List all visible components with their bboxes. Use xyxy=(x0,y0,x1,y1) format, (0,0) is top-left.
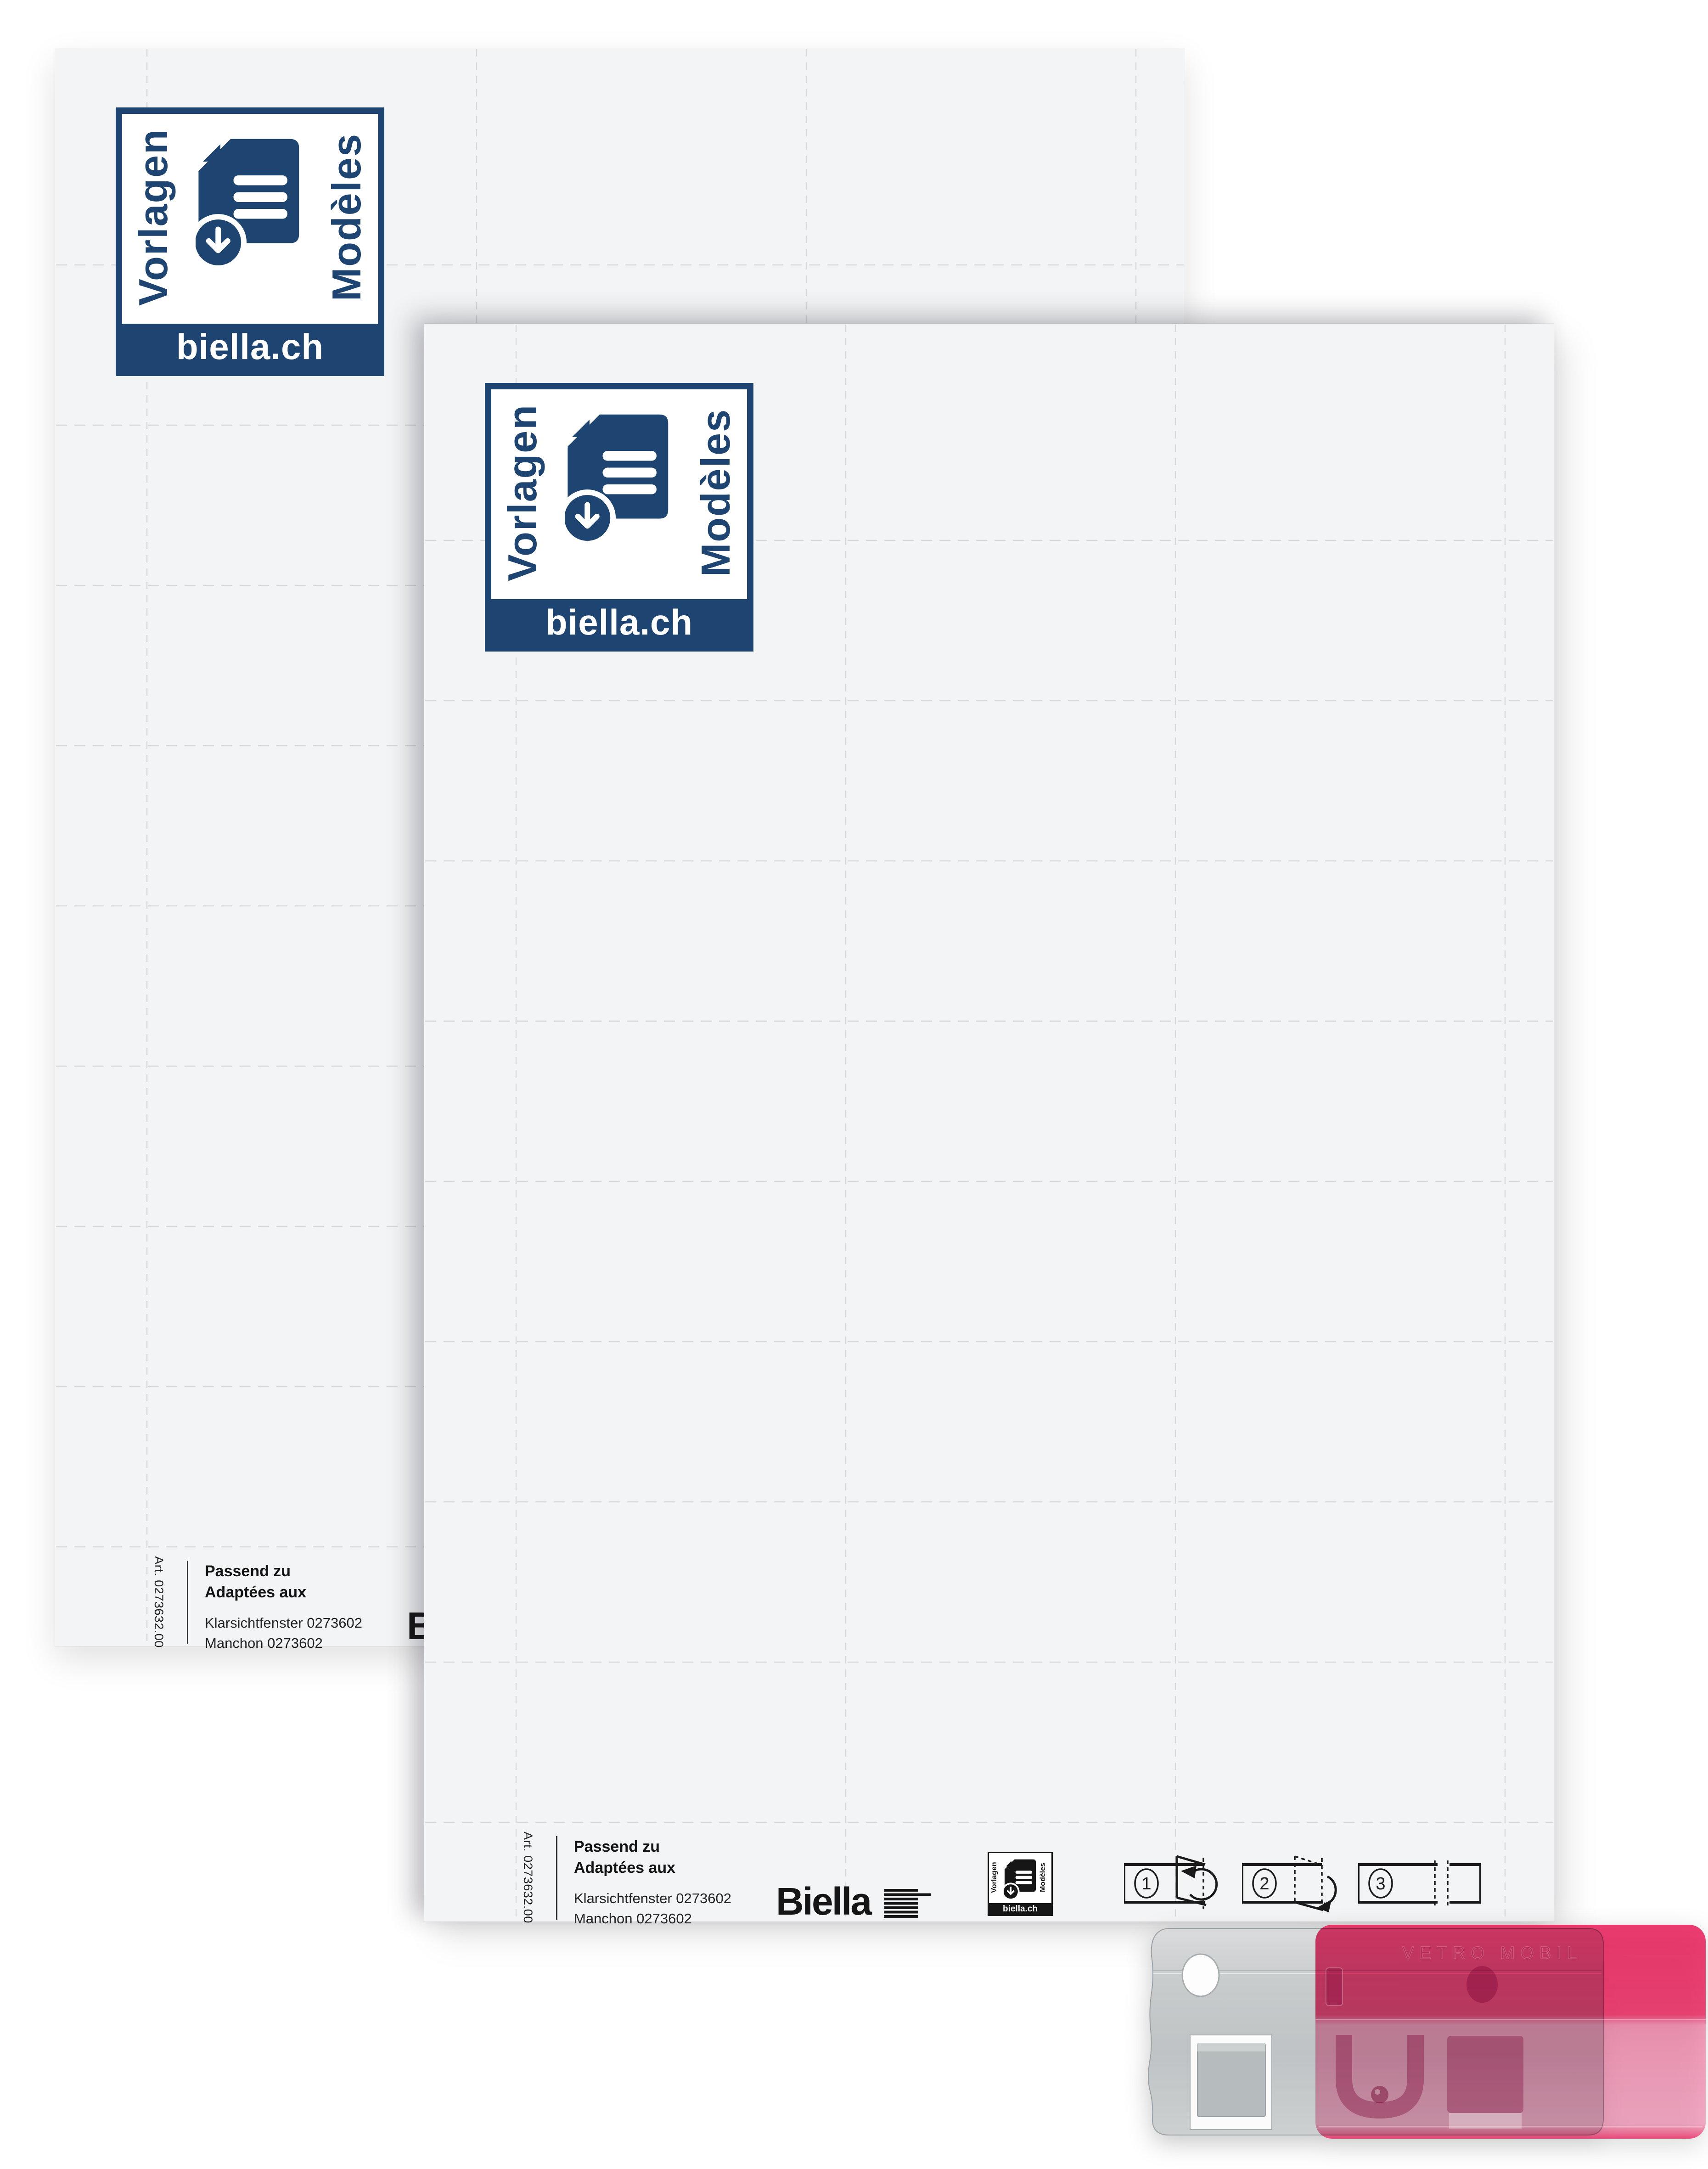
biella-wordmark: Biella xyxy=(776,1882,871,1921)
document-download-icon xyxy=(196,137,305,272)
step-3-number: 3 xyxy=(1376,1874,1385,1894)
mini-badge-site-bar: biella.ch xyxy=(989,1903,1051,1915)
badge-label-modeles: Modèles xyxy=(691,387,741,598)
article-number: Art. 0273632.00 xyxy=(521,1827,535,1928)
document-download-icon xyxy=(1004,1859,1038,1901)
folding-instructions: 1 2 3 xyxy=(1113,1845,1489,1914)
sleeve-slot xyxy=(1326,1968,1343,2006)
step-2-icon xyxy=(1242,1856,1336,1912)
clamp-hole xyxy=(1182,1954,1219,1996)
mini-biella-badge: Vorlagen Modèles biella.ch xyxy=(988,1852,1053,1916)
step-2-number: 2 xyxy=(1259,1874,1269,1894)
clip-embossed-text: VETRO MOBIL xyxy=(1402,1944,1582,1963)
mini-badge-label-modeles: Modèles xyxy=(1038,1854,1048,1900)
divider-line xyxy=(187,1561,188,1644)
sleeve-square-cutout xyxy=(1447,2036,1523,2113)
biella-download-badge: Vorlagen Modèles biella.ch xyxy=(485,383,753,652)
fits-item-fr: Manchon 0273602 xyxy=(574,1909,731,1929)
biella-download-badge: Vorlagen Modèles biella.ch xyxy=(116,107,384,376)
fits-item-de: Klarsichtfenster 0273602 xyxy=(574,1888,731,1909)
biella-stripes-mark xyxy=(884,1889,931,1918)
fits-item-fr: Manchon 0273602 xyxy=(205,1633,362,1653)
mini-badge-label-vorlagen: Vorlagen xyxy=(989,1854,1000,1900)
sleeve-rivet xyxy=(1371,2086,1388,2103)
template-sheet-front: Vorlagen Modèles biella.ch Art. 0273632.… xyxy=(424,324,1554,1922)
clamp-tab xyxy=(1197,2043,1265,2117)
badge-site-bar: biella.ch xyxy=(491,599,747,645)
fits-to-fr: Adaptées aux xyxy=(574,1857,731,1878)
divider-line xyxy=(556,1836,557,1920)
sleeve-hole xyxy=(1466,1966,1498,2003)
fits-to-fr: Adaptées aux xyxy=(205,1582,362,1603)
fits-to-block: Passend zu Adaptées aux Klarsichtfenster… xyxy=(574,1836,731,1929)
step-1-icon xyxy=(1124,1856,1217,1909)
badge-label-vorlagen: Vorlagen xyxy=(128,112,179,323)
step-1-number: 1 xyxy=(1141,1874,1151,1894)
article-number: Art. 0273632.00 xyxy=(152,1551,166,1652)
sheet-bottom-strip: Art. 0273632.00 Passend zu Adaptées aux … xyxy=(424,1822,1554,1922)
fits-to-de: Passend zu xyxy=(205,1561,362,1582)
badge-label-modeles: Modèles xyxy=(321,112,372,323)
badge-site-bar: biella.ch xyxy=(122,324,378,370)
document-download-icon xyxy=(565,412,674,548)
fits-item-de: Klarsichtfenster 0273602 xyxy=(205,1613,362,1633)
clip-with-pink-sleeve: VETRO MOBIL xyxy=(1139,1919,1708,2149)
fits-to-block: Passend zu Adaptées aux Klarsichtfenster… xyxy=(205,1561,362,1653)
fits-to-de: Passend zu xyxy=(574,1836,731,1857)
badge-label-vorlagen: Vorlagen xyxy=(497,387,548,598)
